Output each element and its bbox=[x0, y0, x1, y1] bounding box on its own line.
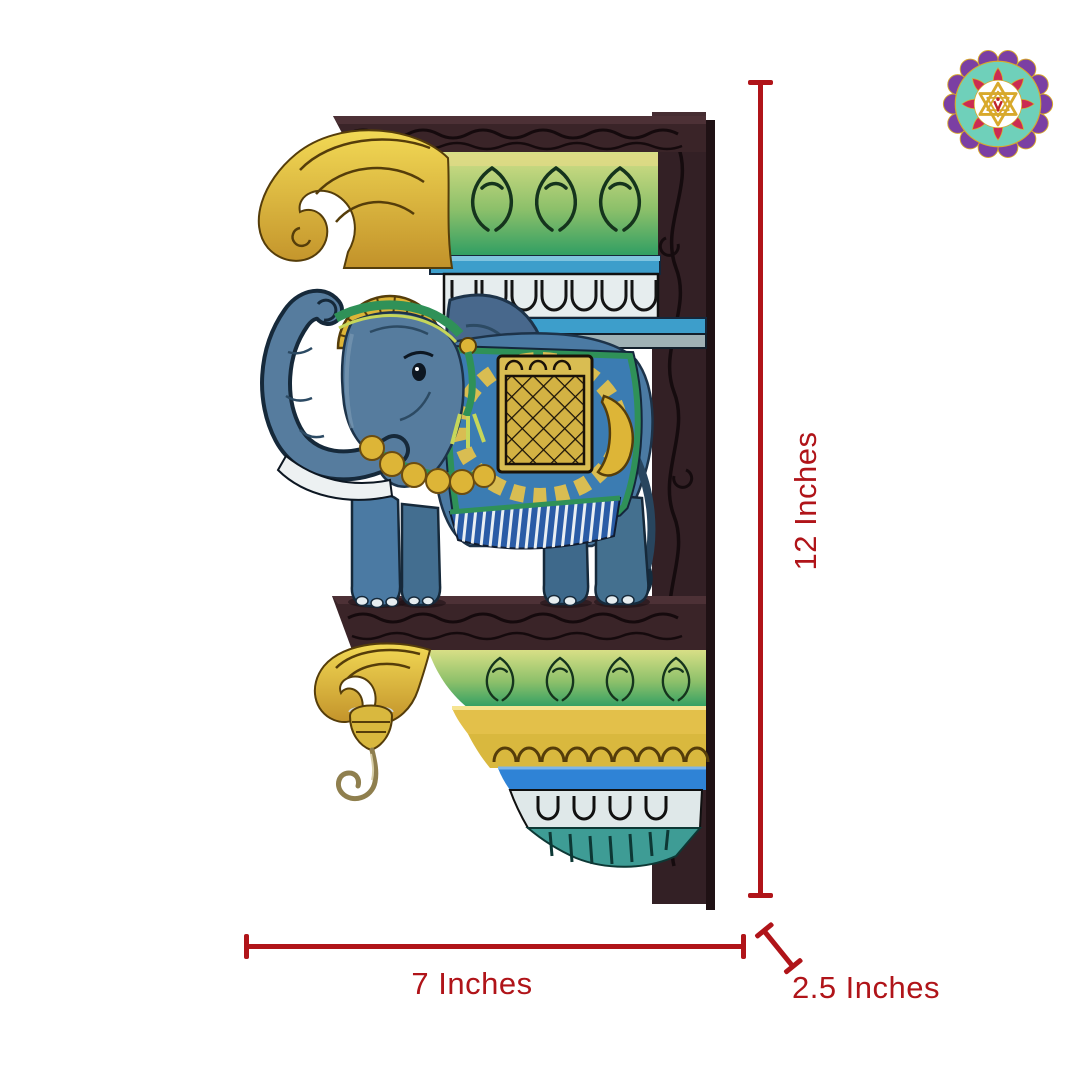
elephant bbox=[276, 295, 653, 607]
height-line-bottom-cap bbox=[748, 893, 773, 898]
height-line bbox=[758, 82, 763, 896]
product-dimension-image: 12 Inches 7 Inches 2.5 Inches bbox=[0, 0, 1080, 1080]
width-line-left-cap bbox=[244, 934, 249, 959]
width-line-right-cap bbox=[741, 934, 746, 959]
mandala-center-disc bbox=[974, 80, 1022, 128]
width-dimension-line bbox=[244, 934, 746, 959]
brass-hook bbox=[338, 750, 375, 799]
width-dimension-label: 7 Inches bbox=[411, 966, 532, 1002]
height-dimension-label: 12 Inches bbox=[788, 432, 824, 571]
height-line-top-cap bbox=[748, 80, 773, 85]
elephant-eye bbox=[412, 363, 426, 381]
height-dimension-line bbox=[748, 80, 773, 898]
lower-corbel bbox=[315, 643, 708, 866]
product-photo bbox=[0, 0, 1080, 1080]
brand-logo bbox=[941, 47, 1055, 161]
width-line bbox=[246, 944, 744, 949]
depth-dimension-label: 2.5 Inches bbox=[792, 970, 940, 1006]
